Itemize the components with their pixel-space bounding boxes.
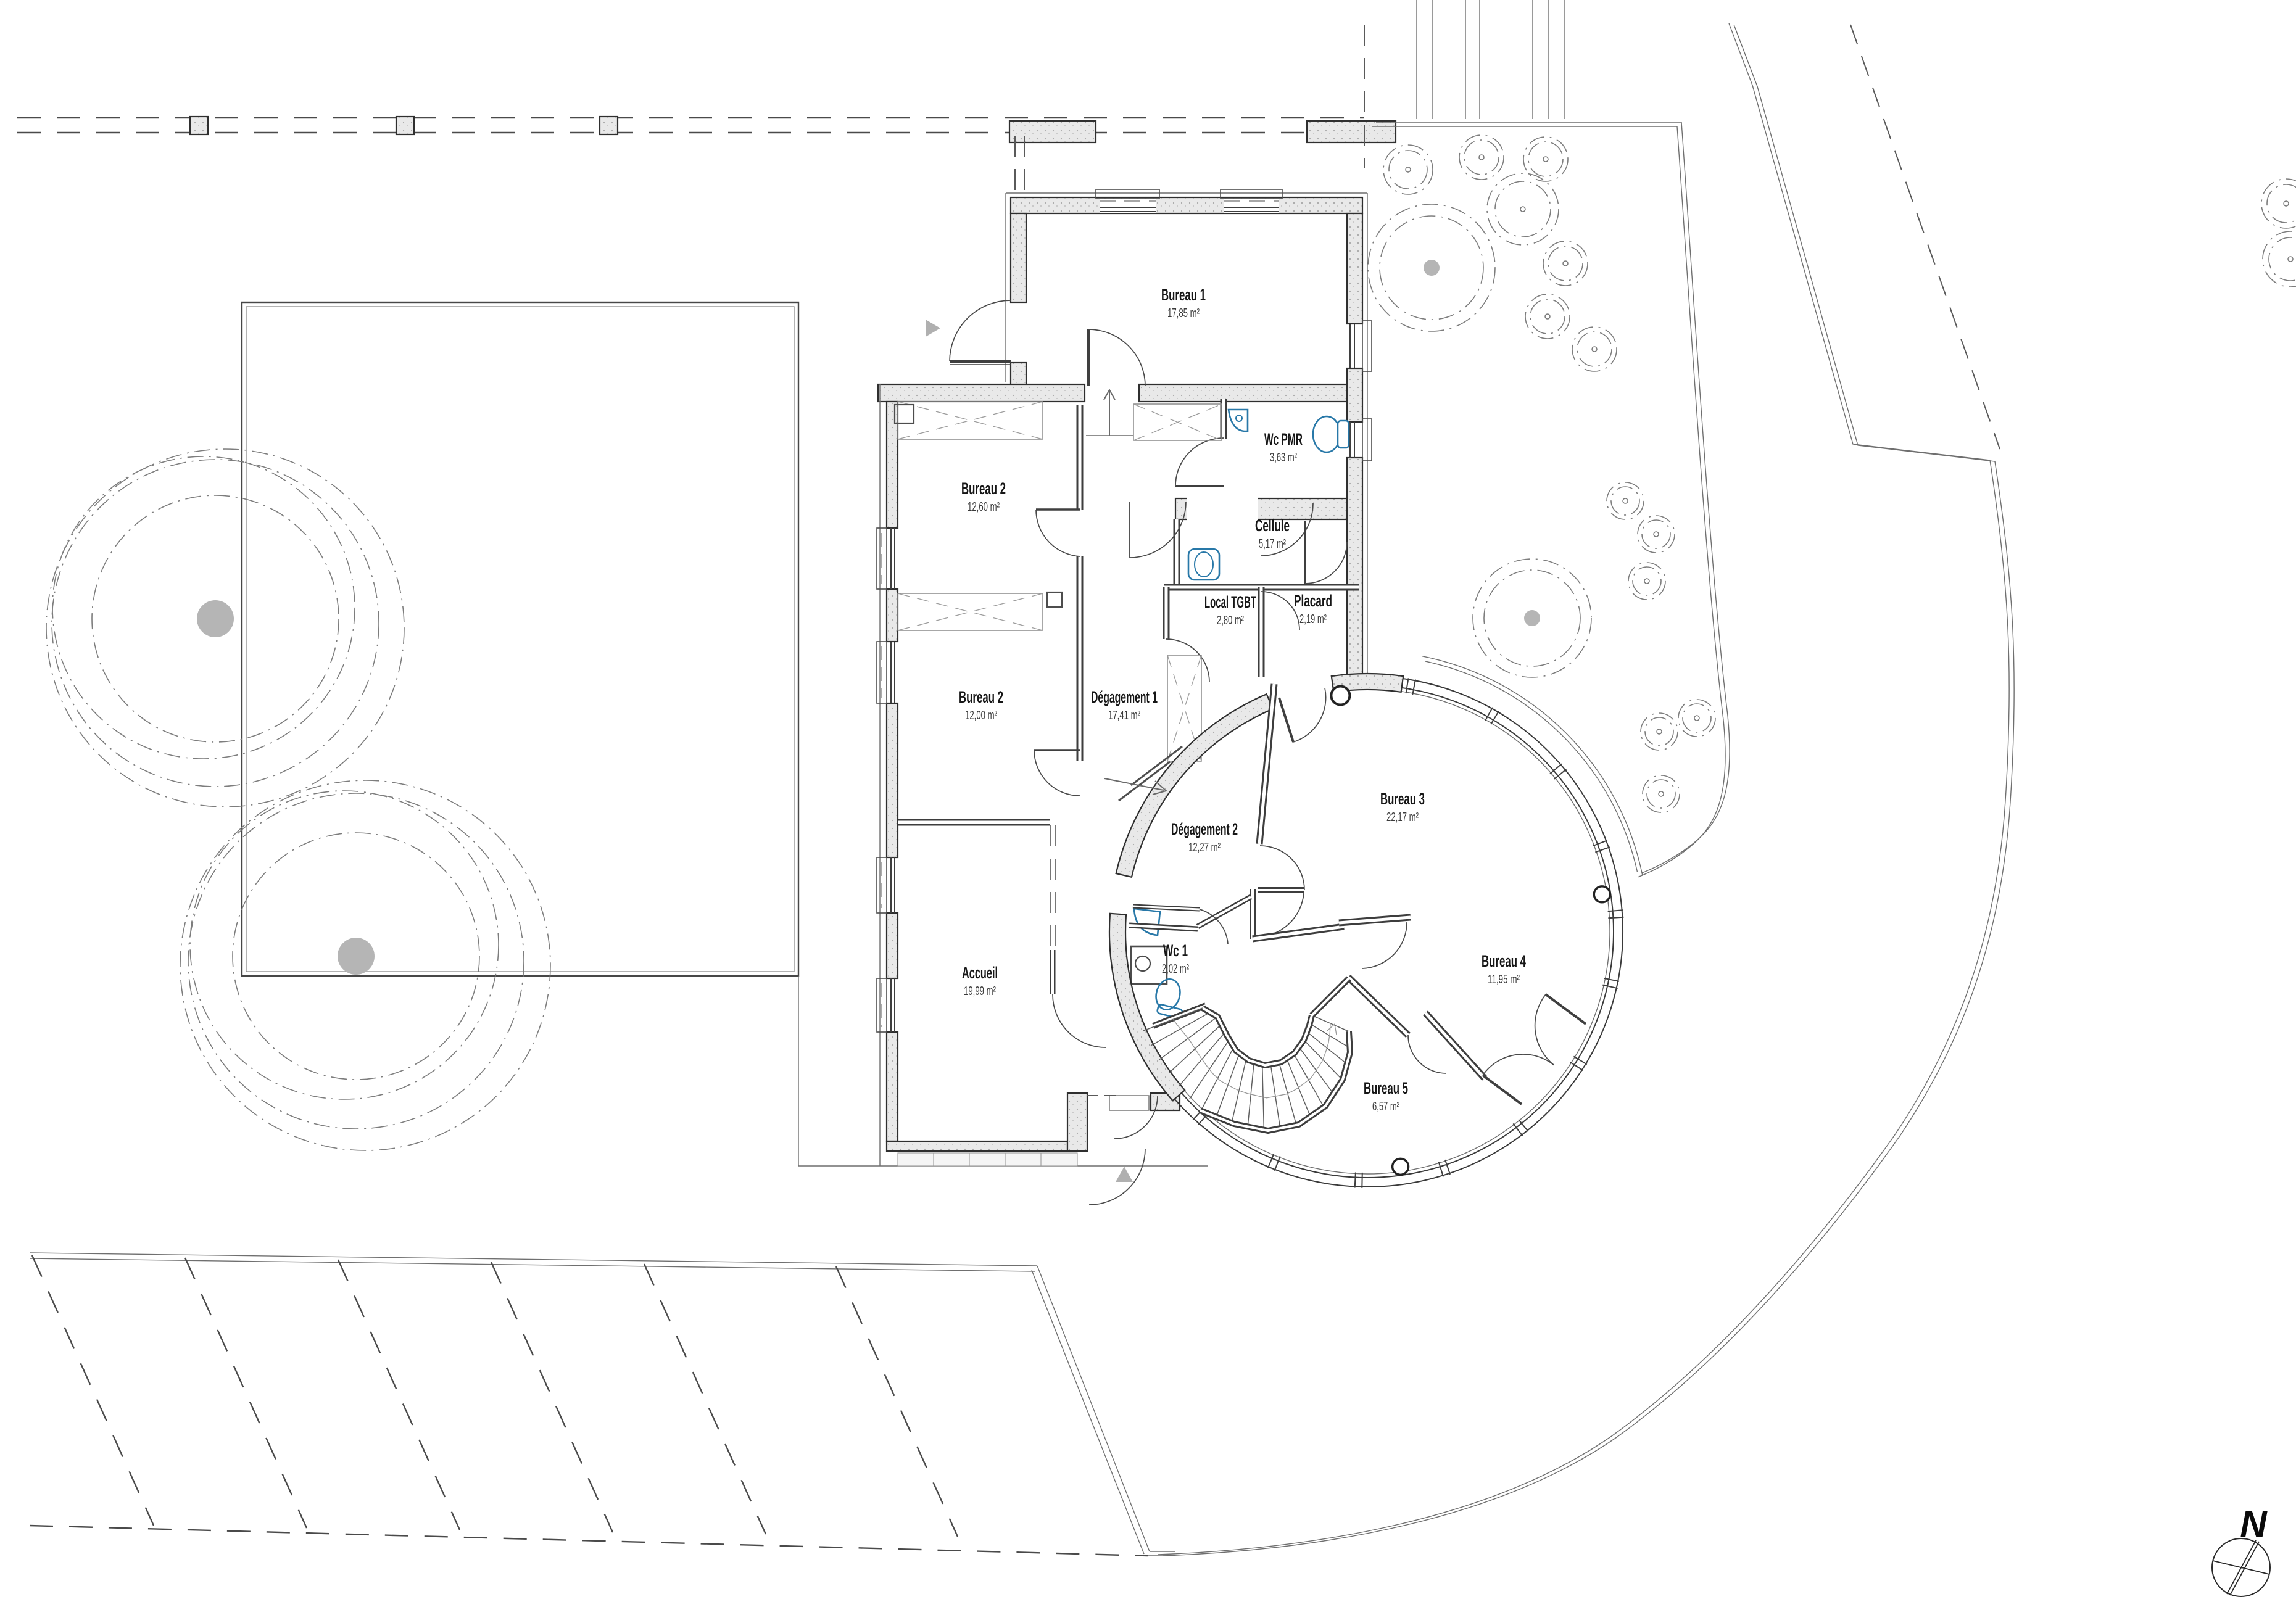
svg-text:Bureau 1: Bureau 1 [1161,286,1206,304]
svg-text:5,17 m²: 5,17 m² [1259,537,1286,551]
svg-text:Cellule: Cellule [1255,516,1290,535]
svg-text:Accueil: Accueil [962,964,998,982]
svg-text:Local TGBT: Local TGBT [1204,593,1256,611]
svg-text:Bureau 5: Bureau 5 [1364,1079,1408,1097]
svg-text:2,80 m²: 2,80 m² [1217,614,1244,627]
svg-text:Bureau 3: Bureau 3 [1380,790,1425,808]
svg-text:3,63 m²: 3,63 m² [1270,451,1297,465]
svg-text:2,02 m²: 2,02 m² [1162,962,1189,976]
svg-text:Bureau 4: Bureau 4 [1482,952,1526,970]
svg-text:N: N [2240,1503,2268,1545]
svg-text:Bureau 2: Bureau 2 [959,688,1003,706]
svg-text:6,57 m²: 6,57 m² [1372,1100,1399,1113]
svg-text:22,17 m²: 22,17 m² [1386,811,1419,824]
svg-text:19,99 m²: 19,99 m² [964,985,996,998]
svg-text:17,85 m²: 17,85 m² [1167,307,1200,320]
svg-text:Bureau 2: Bureau 2 [961,479,1006,498]
svg-text:Dégagement 1: Dégagement 1 [1091,688,1158,706]
svg-text:2,19 m²: 2,19 m² [1299,613,1327,626]
svg-text:12,27 m²: 12,27 m² [1188,841,1221,854]
svg-text:Placard: Placard [1294,592,1332,610]
svg-text:12,00 m²: 12,00 m² [965,709,997,722]
svg-text:17,41 m²: 17,41 m² [1108,709,1140,722]
svg-text:11,95 m²: 11,95 m² [1488,973,1520,986]
svg-text:Wc PMR: Wc PMR [1264,430,1303,448]
svg-text:Dégagement 2: Dégagement 2 [1171,820,1238,838]
svg-text:Wc 1: Wc 1 [1163,941,1188,960]
svg-text:12,60 m²: 12,60 m² [968,500,1000,514]
